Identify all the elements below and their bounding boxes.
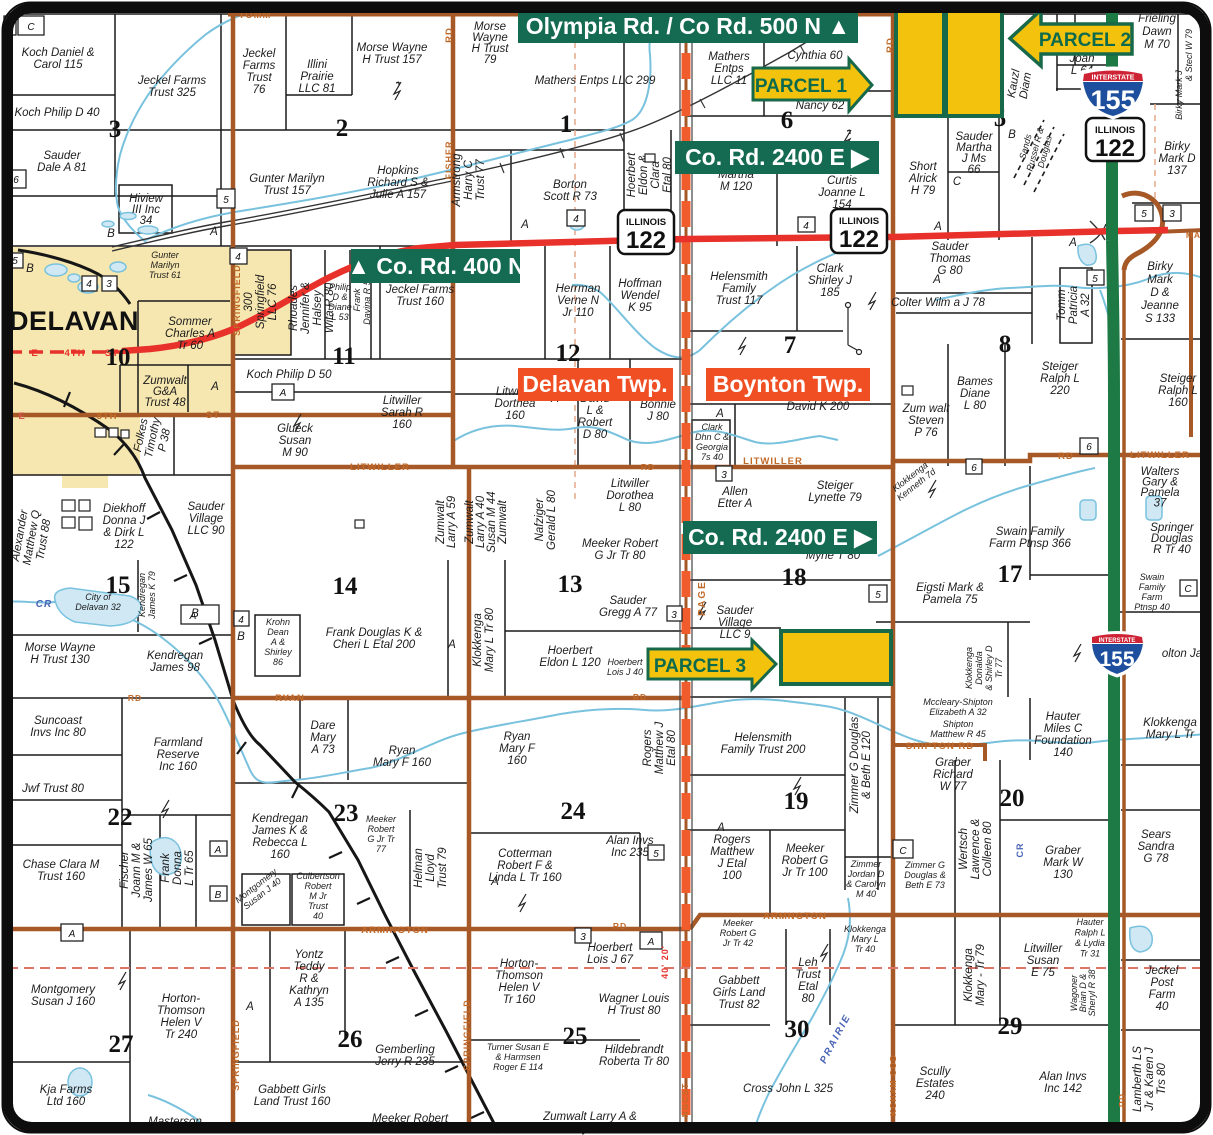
svg-text:27: 27 bbox=[109, 1031, 134, 1058]
svg-text:DELAVAN: DELAVAN bbox=[9, 306, 139, 336]
svg-text:A: A bbox=[447, 639, 456, 651]
svg-text:6: 6 bbox=[781, 107, 794, 134]
svg-text:155: 155 bbox=[1090, 85, 1135, 115]
svg-text:20: 20 bbox=[1000, 785, 1025, 812]
svg-text:Olympia Rd. / Co Rd. 500 N ▲: Olympia Rd. / Co Rd. 500 N ▲ bbox=[526, 13, 850, 39]
svg-text:HoerbertLois J 67: HoerbertLois J 67 bbox=[587, 942, 634, 966]
svg-text:RD: RD bbox=[613, 921, 627, 931]
svg-text:18: 18 bbox=[782, 564, 807, 591]
svg-text:Colter Wilm a J 78: Colter Wilm a J 78 bbox=[891, 297, 985, 309]
svg-text:Gabbett GirlsLand Trust 160: Gabbett GirlsLand Trust 160 bbox=[254, 1084, 331, 1108]
svg-text:3: 3 bbox=[721, 470, 727, 481]
svg-text:RYAN: RYAN bbox=[275, 693, 305, 704]
svg-text:122: 122 bbox=[626, 227, 666, 254]
svg-text:122: 122 bbox=[839, 226, 879, 253]
svg-text:3: 3 bbox=[580, 932, 586, 943]
svg-text:CottermanRobert F &Linda L Tr: CottermanRobert F &Linda L Tr 160 bbox=[488, 848, 562, 884]
svg-text:B: B bbox=[1008, 129, 1016, 141]
svg-text:7: 7 bbox=[784, 332, 797, 359]
svg-text:INTERSTATE: INTERSTATE bbox=[1099, 638, 1136, 644]
svg-text:Birky Mark J: Birky Mark J bbox=[1174, 70, 1184, 120]
svg-text:MontgomerySusan J 160: MontgomerySusan J 160 bbox=[31, 984, 96, 1008]
svg-text:Zimmer G Douglas& Beth E 120: Zimmer G Douglas& Beth E 120 bbox=[849, 717, 873, 815]
svg-text:KlokkengaMary - Tr 79: KlokkengaMary - Tr 79 bbox=[963, 944, 987, 1006]
svg-text:AllenEtter A: AllenEtter A bbox=[718, 486, 753, 510]
svg-text:HoerbertLois J 40: HoerbertLois J 40 bbox=[607, 657, 643, 677]
svg-text:A: A bbox=[279, 388, 287, 399]
svg-text:PARCEL 2: PARCEL 2 bbox=[1039, 30, 1131, 51]
svg-text:NGCST: NGCST bbox=[680, 1083, 690, 1118]
svg-text:David K 200: David K 200 bbox=[787, 401, 850, 413]
svg-text:Mathers Entps LLC 299: Mathers Entps LLC 299 bbox=[535, 75, 656, 87]
svg-text:A: A bbox=[245, 1001, 254, 1013]
svg-text:A: A bbox=[210, 381, 219, 393]
svg-text:FrankDonnaL Tr 65: FrankDonnaL Tr 65 bbox=[160, 850, 196, 886]
svg-text:2: 2 bbox=[336, 115, 349, 142]
svg-text:A: A bbox=[490, 876, 499, 888]
svg-text:SauderVillageLLC 90: SauderVillageLLC 90 bbox=[187, 501, 225, 537]
svg-text:23: 23 bbox=[334, 800, 359, 827]
svg-text:MeekerRobert GJr Tr 100: MeekerRobert GJr Tr 100 bbox=[781, 843, 828, 879]
svg-text:24: 24 bbox=[561, 798, 587, 825]
svg-text:5: 5 bbox=[1141, 209, 1147, 220]
svg-text:INTERSTATE: INTERSTATE bbox=[1092, 75, 1135, 82]
svg-text:26: 26 bbox=[338, 1026, 363, 1053]
svg-text:C: C bbox=[1184, 584, 1192, 595]
svg-text:▲ Co. Rd. 400 N: ▲ Co. Rd. 400 N bbox=[347, 253, 524, 279]
svg-text:ZumwaltLarry A 59: ZumwaltLarry A 59 bbox=[435, 495, 458, 548]
svg-text:RD: RD bbox=[444, 27, 455, 43]
svg-text:5: 5 bbox=[223, 195, 229, 206]
svg-text:PAGE: PAGE bbox=[697, 580, 708, 616]
svg-text:155: 155 bbox=[1099, 648, 1134, 671]
svg-text:A: A bbox=[933, 221, 942, 233]
svg-text:B: B bbox=[191, 608, 199, 620]
svg-text:Zimmer GDouglas &Beth E 73: Zimmer GDouglas &Beth E 73 bbox=[904, 860, 946, 890]
svg-text:3: 3 bbox=[1169, 209, 1175, 220]
svg-text:25: 25 bbox=[563, 1023, 588, 1050]
svg-text:Alan InvsInc 142: Alan InvsInc 142 bbox=[1038, 1071, 1087, 1095]
svg-text:Jwf Trust 80: Jwf Trust 80 bbox=[21, 783, 84, 795]
svg-text:GemberlingJerry R 235: GemberlingJerry R 235 bbox=[374, 1044, 435, 1068]
svg-text:C: C bbox=[953, 176, 962, 188]
svg-text:SPRINGFIELD: SPRINGFIELD bbox=[462, 999, 472, 1071]
svg-text:ST: ST bbox=[206, 410, 220, 421]
svg-text:Mccleary-ShiptonElizabeth A 32: Mccleary-ShiptonElizabeth A 32 bbox=[923, 697, 993, 717]
svg-text:HoerbertEldon L 120: HoerbertEldon L 120 bbox=[539, 645, 601, 669]
svg-text:SauderDale A 81: SauderDale A 81 bbox=[37, 150, 87, 174]
svg-text:8: 8 bbox=[999, 331, 1012, 358]
svg-text:A: A bbox=[716, 822, 725, 834]
svg-text:17: 17 bbox=[998, 561, 1023, 588]
svg-text:30: 30 bbox=[785, 1016, 810, 1043]
svg-text:C: C bbox=[899, 846, 907, 857]
svg-text:5: 5 bbox=[1092, 274, 1098, 285]
svg-text:KauzlDiam: KauzlDiam bbox=[1006, 68, 1035, 101]
svg-text:ZumwaltLarry A 40: ZumwaltLarry A 40 bbox=[464, 495, 487, 548]
svg-text:3: 3 bbox=[671, 610, 677, 621]
svg-text:RD: RD bbox=[128, 693, 142, 703]
svg-text:Morse WayneH Trust 157: Morse WayneH Trust 157 bbox=[357, 42, 428, 66]
svg-text:LITWILLER: LITWILLER bbox=[743, 456, 803, 467]
svg-text:5: 5 bbox=[653, 849, 659, 860]
svg-text:Koch Philip D 40: Koch Philip D 40 bbox=[14, 107, 100, 119]
svg-text:MeekerRobert GJr Tr 42: MeekerRobert GJr Tr 42 bbox=[720, 918, 757, 948]
svg-text:CR: CR bbox=[1015, 843, 1025, 858]
svg-text:DareMaryA 73: DareMaryA 73 bbox=[310, 720, 337, 756]
svg-text:A: A bbox=[647, 937, 655, 948]
svg-text:Koch Philip D 50: Koch Philip D 50 bbox=[246, 369, 332, 381]
svg-text:6: 6 bbox=[13, 175, 19, 186]
svg-text:Morse WayneH Trust 130: Morse WayneH Trust 130 bbox=[25, 642, 96, 666]
svg-text:10: 10 bbox=[106, 344, 131, 371]
svg-text:B: B bbox=[26, 263, 34, 275]
svg-text:Cross John L 325: Cross John L 325 bbox=[743, 1083, 834, 1095]
svg-text:SHIPTON RD: SHIPTON RD bbox=[906, 741, 974, 752]
svg-text:SuncoastInvs Inc 80: SuncoastInvs Inc 80 bbox=[30, 715, 86, 739]
svg-text:4: 4 bbox=[573, 214, 579, 225]
svg-text:22: 22 bbox=[108, 804, 133, 831]
svg-text:Eigsti Mark &Pamela 75: Eigsti Mark &Pamela 75 bbox=[916, 582, 984, 606]
svg-text:RD: RD bbox=[1058, 451, 1074, 462]
svg-text:olton Ja: olton Ja bbox=[1162, 648, 1202, 660]
svg-text:E: E bbox=[18, 411, 25, 422]
svg-text:A: A bbox=[1068, 237, 1077, 249]
svg-text:Co. Rd. 2400 E ▶: Co. Rd. 2400 E ▶ bbox=[688, 524, 873, 550]
svg-text:C: C bbox=[27, 22, 35, 33]
svg-text:CR: CR bbox=[36, 599, 52, 610]
svg-text:FarmlandReserveInc 160: FarmlandReserveInc 160 bbox=[154, 737, 203, 773]
svg-text:14: 14 bbox=[333, 573, 359, 600]
svg-text:Delavan Twp.: Delavan Twp. bbox=[522, 371, 667, 397]
svg-text:4TH: 4TH bbox=[65, 348, 86, 359]
svg-text:4: 4 bbox=[238, 615, 244, 626]
svg-text:A: A bbox=[715, 408, 724, 420]
svg-text:GabbettGirls LandTrust 82: GabbettGirls LandTrust 82 bbox=[713, 975, 766, 1011]
svg-text:KendreganJames 98: KendreganJames 98 bbox=[147, 650, 203, 674]
svg-text:Swain FamilyFarm Ptnsp 366: Swain FamilyFarm Ptnsp 366 bbox=[989, 526, 1071, 550]
svg-text:Boynton Twp.: Boynton Twp. bbox=[713, 371, 863, 397]
svg-text:RD: RD bbox=[641, 462, 655, 472]
svg-text:SPRINGFIELD: SPRINGFIELD bbox=[232, 264, 242, 336]
svg-text:11: 11 bbox=[332, 343, 356, 370]
svg-text:KendreganJames K 79: KendreganJames K 79 bbox=[137, 571, 157, 620]
svg-text:Cynthia 60: Cynthia 60 bbox=[788, 50, 844, 62]
svg-text:LITWILLER: LITWILLER bbox=[1130, 450, 1190, 461]
svg-text:KlokkengaMary L Tr 80: KlokkengaMary L Tr 80 bbox=[472, 607, 496, 672]
svg-text:ARMNGTON: ARMNGTON bbox=[763, 911, 827, 922]
svg-text:122: 122 bbox=[1095, 135, 1135, 162]
svg-text:B: B bbox=[107, 228, 115, 240]
svg-text:12: 12 bbox=[556, 340, 581, 367]
svg-text:ShortAlrickH 79: ShortAlrickH 79 bbox=[908, 161, 938, 197]
svg-text:B: B bbox=[237, 631, 245, 643]
svg-text:1: 1 bbox=[560, 111, 573, 138]
svg-text:Kja FarmsLtd 160: Kja FarmsLtd 160 bbox=[40, 1084, 93, 1108]
svg-text:PhilipD &DianeL 53: PhilipD &DianeL 53 bbox=[328, 282, 352, 322]
svg-text:13: 13 bbox=[558, 571, 583, 598]
svg-text:PARCEL 1: PARCEL 1 bbox=[755, 76, 848, 97]
svg-text:3: 3 bbox=[109, 116, 122, 143]
svg-text:Frank Douglas K &Cheri L Etal: Frank Douglas K &Cheri L Etal 200 bbox=[326, 627, 423, 651]
svg-text:Wagner LouisH Trust 80: Wagner LouisH Trust 80 bbox=[599, 993, 670, 1017]
svg-text:4: 4 bbox=[803, 221, 809, 232]
svg-text:5: 5 bbox=[12, 256, 18, 267]
svg-text:KlokkengaMary L Tr: KlokkengaMary L Tr bbox=[1143, 717, 1197, 741]
svg-text:& Stecl W 79: & Stecl W 79 bbox=[1184, 29, 1194, 81]
svg-text:SPRINGFIELD: SPRINGFIELD bbox=[231, 1019, 241, 1091]
svg-text:RD: RD bbox=[1117, 1093, 1127, 1107]
svg-text:ArmstrongHarry CTrust 77: ArmstrongHarry CTrust 77 bbox=[451, 153, 487, 208]
svg-text:SpringerDouglasR Tr 40: SpringerDouglasR Tr 40 bbox=[1150, 522, 1195, 556]
svg-text:HildebrandtRoberta Tr 80: HildebrandtRoberta Tr 80 bbox=[599, 1044, 670, 1068]
svg-text:A: A bbox=[520, 219, 529, 231]
svg-text:A: A bbox=[68, 929, 76, 940]
svg-text:A: A bbox=[209, 226, 218, 238]
svg-text:40' 20': 40' 20' bbox=[660, 945, 670, 979]
svg-text:Susan M 44Zumwalt: Susan M 44Zumwalt bbox=[486, 491, 509, 552]
svg-text:FISHER: FISHER bbox=[444, 140, 454, 179]
svg-text:A: A bbox=[932, 274, 941, 286]
svg-text:KCHAM COD: KCHAM COD bbox=[888, 1054, 898, 1116]
svg-text:SauderVillageLLC 9: SauderVillageLLC 9 bbox=[716, 605, 754, 641]
svg-text:ARMINGTON: ARMINGTON bbox=[361, 925, 428, 936]
svg-text:PARCEL 3: PARCEL 3 bbox=[654, 656, 746, 677]
svg-text:RD: RD bbox=[633, 692, 647, 702]
svg-text:Alan InvsInc 235: Alan InvsInc 235 bbox=[605, 835, 654, 859]
svg-text:6: 6 bbox=[1086, 442, 1092, 453]
svg-text:Co. Rd. 2400 E ▶: Co. Rd. 2400 E ▶ bbox=[685, 144, 870, 170]
svg-text:A: A bbox=[214, 845, 222, 856]
svg-text:GunterMarilynTrust 61: GunterMarilynTrust 61 bbox=[149, 250, 181, 280]
svg-text:29: 29 bbox=[998, 1013, 1023, 1040]
svg-text:4: 4 bbox=[86, 279, 92, 290]
svg-text:3: 3 bbox=[106, 279, 112, 290]
svg-text:15: 15 bbox=[106, 572, 131, 599]
svg-text:Nancy 62: Nancy 62 bbox=[796, 100, 845, 112]
svg-text:LITWILLER: LITWILLER bbox=[350, 462, 410, 473]
svg-text:5: 5 bbox=[875, 590, 881, 601]
svg-text:8TH: 8TH bbox=[97, 411, 118, 422]
svg-text:6: 6 bbox=[971, 463, 977, 474]
svg-text:E: E bbox=[31, 348, 38, 359]
svg-text:4: 4 bbox=[235, 252, 241, 263]
svg-text:19: 19 bbox=[784, 788, 809, 815]
svg-text:WagonerBrian D &Sheryl R 38: WagonerBrian D &Sheryl R 38 bbox=[1069, 969, 1097, 1016]
svg-text:B: B bbox=[215, 890, 222, 901]
